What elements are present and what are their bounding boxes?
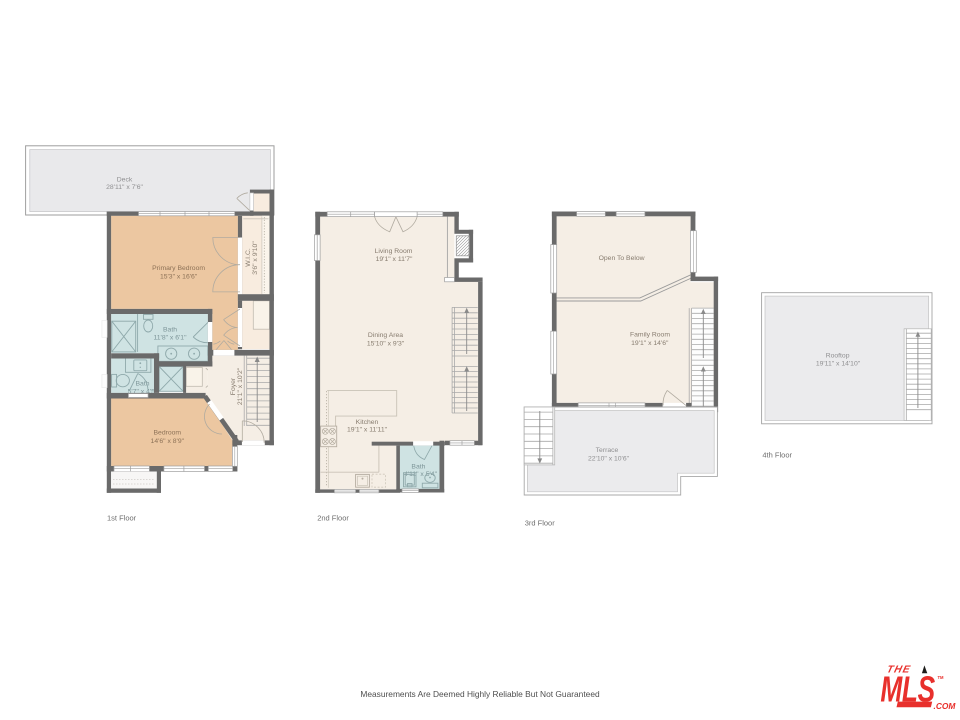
svg-text:22'10" x 10'6": 22'10" x 10'6" [588, 456, 630, 463]
svg-text:28'11" x 7'6": 28'11" x 7'6" [106, 184, 143, 191]
svg-text:Dining Area: Dining Area [368, 332, 403, 339]
svg-text:Living Room: Living Room [375, 248, 413, 255]
svg-text:14'6" x 8'9": 14'6" x 8'9" [151, 438, 185, 445]
svg-text:Deck: Deck [117, 177, 133, 184]
svg-text:2nd Floor: 2nd Floor [317, 514, 349, 523]
svg-text:Kitchen: Kitchen [356, 419, 379, 426]
svg-text:TM: TM [938, 675, 945, 680]
svg-text:3'6" x 9'10": 3'6" x 9'10" [252, 241, 259, 275]
svg-text:3rd Floor: 3rd Floor [525, 518, 556, 527]
svg-text:19'1" x 11'11": 19'1" x 11'11" [347, 427, 388, 434]
svg-text:Measurements Are Deemed Highly: Measurements Are Deemed Highly Reliable … [360, 689, 600, 699]
svg-text:21'1" x 10'2": 21'1" x 10'2" [237, 367, 244, 405]
svg-text:19'1" x 11'7": 19'1" x 11'7" [376, 256, 413, 263]
svg-text:19'11" x 14'10": 19'11" x 14'10" [816, 361, 861, 368]
svg-text:Open To Below: Open To Below [599, 255, 645, 262]
svg-text:4th Floor: 4th Floor [762, 450, 792, 459]
svg-text:Rooftop: Rooftop [826, 353, 850, 360]
svg-text:Family Room: Family Room [630, 332, 670, 339]
svg-text:Bath: Bath [163, 327, 177, 334]
svg-text:Bedroom: Bedroom [154, 430, 182, 437]
svg-text:19'1" x 14'6": 19'1" x 14'6" [631, 340, 669, 347]
svg-text:15'3" x 16'6": 15'3" x 16'6" [160, 274, 198, 281]
svg-text:.COM: .COM [934, 701, 957, 711]
svg-text:11'8" x 6'1": 11'8" x 6'1" [154, 334, 188, 341]
svg-text:1st Floor: 1st Floor [107, 514, 137, 523]
svg-text:Primary Bedroom: Primary Bedroom [152, 265, 205, 272]
svg-text:15'10" x 9'3": 15'10" x 9'3" [367, 341, 405, 348]
svg-text:Bath: Bath [411, 463, 425, 470]
svg-text:Terrace: Terrace [596, 447, 619, 454]
